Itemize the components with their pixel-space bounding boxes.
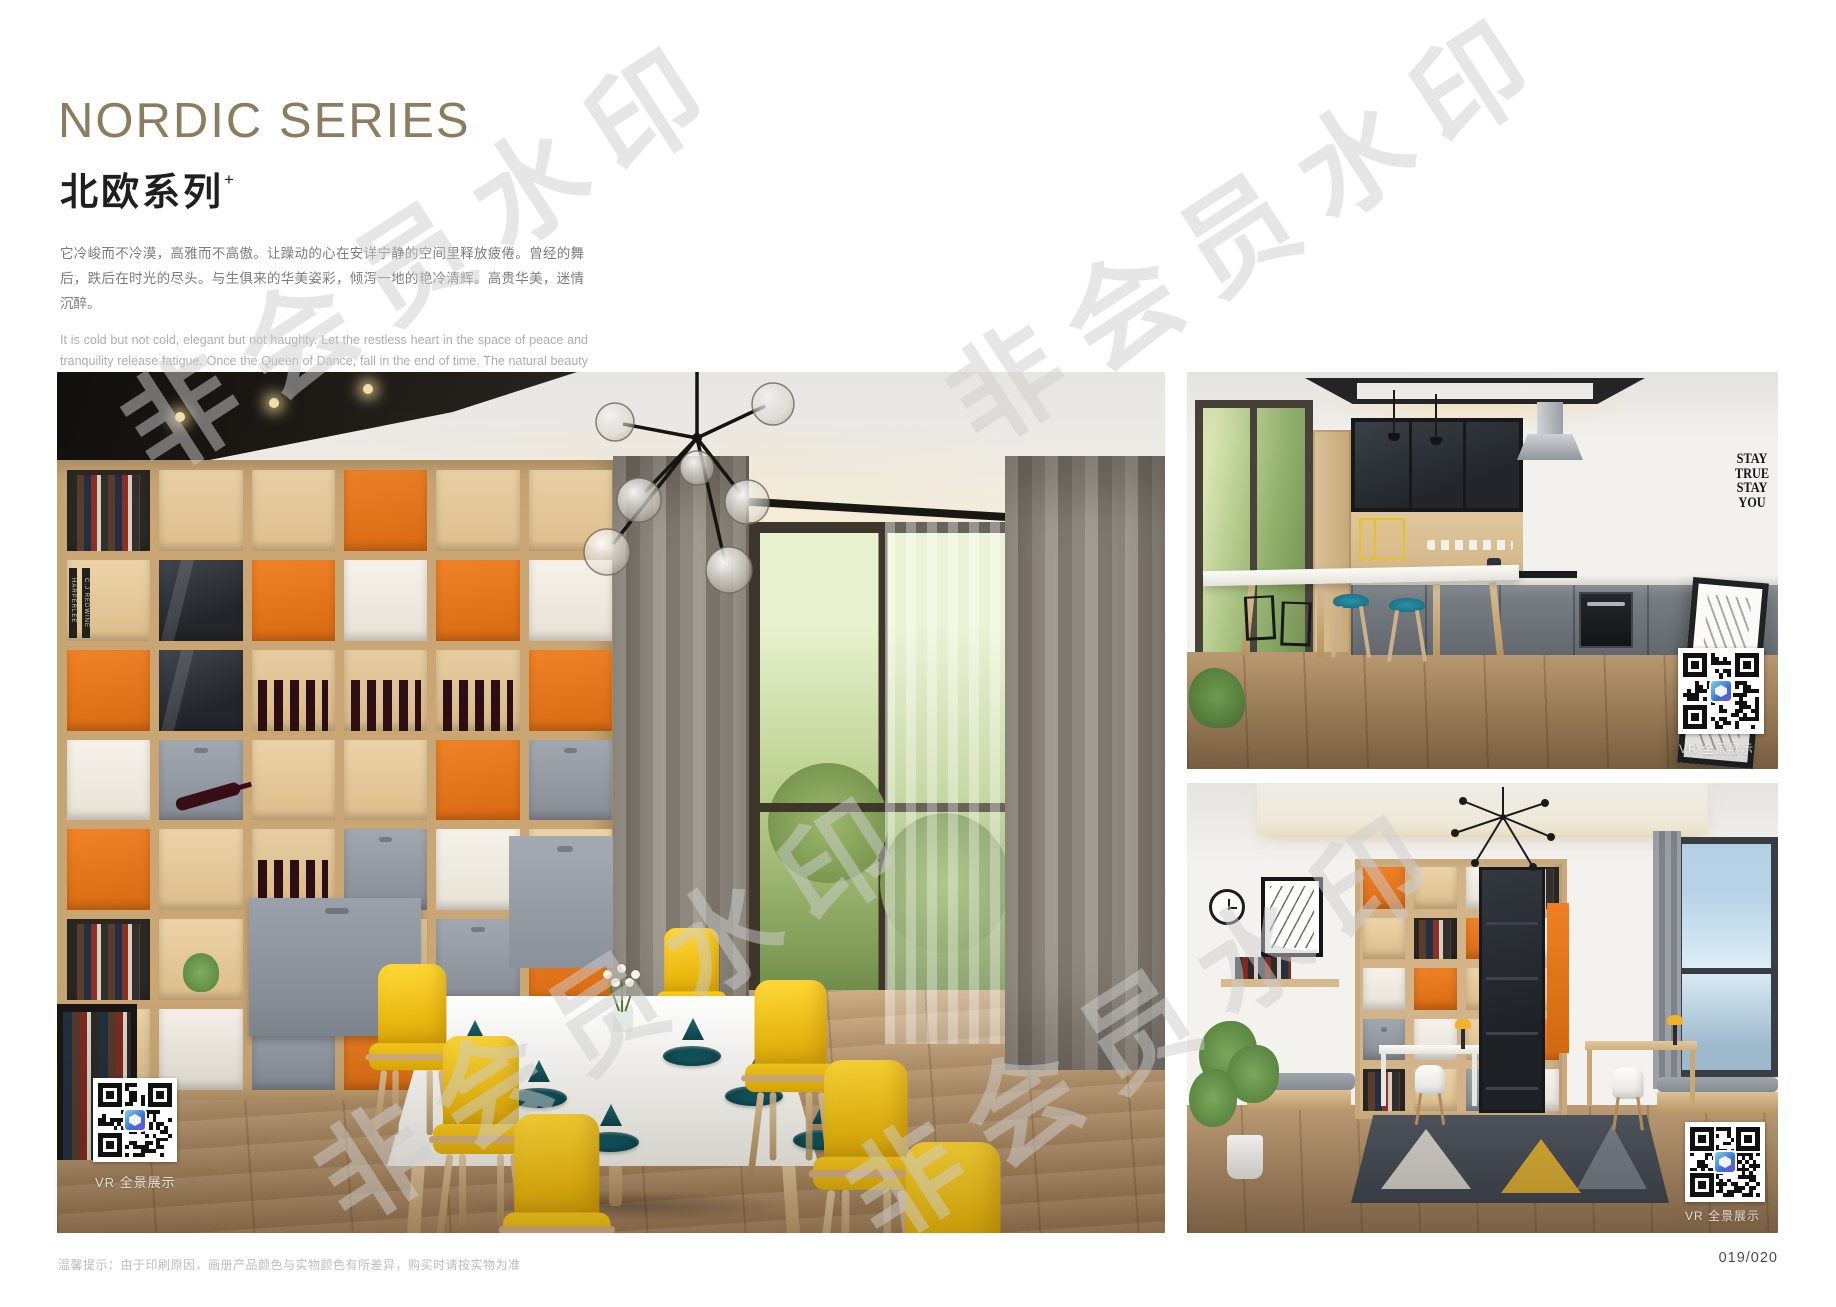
qr-finder	[148, 1083, 172, 1107]
shelf-cell	[344, 740, 427, 821]
dining-chair	[503, 1114, 611, 1233]
pendant-chandelier	[527, 372, 867, 604]
decor	[1587, 1050, 1592, 1106]
sputnik-chandelier	[1433, 787, 1573, 879]
decor	[1381, 1054, 1386, 1106]
subtitle-text: 北欧系列	[60, 172, 224, 214]
metal-chair	[1244, 595, 1276, 641]
decor	[1585, 1041, 1697, 1050]
plant-pot	[1227, 1135, 1263, 1179]
book-spine: HARPERLEE	[69, 568, 77, 638]
decor	[617, 964, 626, 973]
shelf-cell	[159, 650, 242, 731]
decor	[596, 403, 634, 441]
shelf-cell	[159, 470, 242, 551]
qr-module	[1756, 1193, 1760, 1197]
catalog-page: NORDIC SERIES 北欧系列+ 它冷峻而不冷漠，高雅而不高傲。让躁动的心…	[0, 0, 1836, 1307]
decor	[459, 1154, 466, 1226]
shelf-cell	[344, 560, 427, 641]
curtain-right	[1005, 456, 1165, 1070]
qr-code	[1685, 1122, 1765, 1202]
decor	[806, 1092, 813, 1160]
decor	[621, 982, 623, 1012]
decor	[883, 1190, 891, 1233]
pendant-lamp	[1393, 390, 1395, 434]
decor	[1541, 799, 1549, 807]
decor	[371, 1070, 387, 1149]
qr-code	[1678, 648, 1764, 734]
page-title: NORDIC SERIES	[58, 96, 598, 147]
island-leg	[1433, 584, 1440, 658]
page-subtitle: 北欧系列+	[60, 161, 598, 216]
upper-cabinets	[1351, 418, 1523, 512]
decor	[842, 1190, 850, 1233]
shelf-cell	[67, 650, 150, 731]
decor	[584, 383, 794, 593]
decor	[1529, 863, 1537, 871]
ceiling-spotlight	[269, 398, 279, 408]
shelf-cell	[252, 740, 335, 821]
decor	[752, 383, 794, 425]
shelf-cell	[1363, 918, 1405, 960]
garden-view	[768, 763, 888, 883]
shelf-cell	[1363, 867, 1405, 909]
decor	[1612, 1067, 1644, 1099]
decor	[603, 970, 612, 979]
dining-room-photo: HARPERLEE C.J REDWINE	[57, 372, 1165, 1233]
decor	[1537, 402, 1563, 436]
ceiling-spotlight	[175, 412, 185, 422]
decor	[611, 978, 620, 987]
desk-chair	[1610, 1067, 1646, 1132]
ceiling-spotlight	[363, 384, 373, 394]
qr-finder	[1683, 653, 1707, 677]
study-scene: VR 全景展示	[1187, 783, 1778, 1233]
decor	[663, 1046, 721, 1066]
decor	[770, 1092, 777, 1160]
decor	[1472, 1054, 1477, 1106]
decor	[1463, 801, 1503, 817]
range-hood	[1517, 402, 1583, 478]
decor	[1451, 829, 1459, 837]
shelf-cell	[1363, 968, 1405, 1010]
shelf-cell	[436, 470, 519, 551]
book-spines: HARPERLEE C.J REDWINE	[69, 568, 90, 638]
open-shelf-dishes	[1427, 540, 1513, 550]
shelf-cell	[529, 740, 612, 821]
qr-code	[93, 1078, 177, 1162]
decor	[392, 1070, 398, 1135]
decor	[1415, 1065, 1445, 1095]
potted-plant	[1189, 1069, 1237, 1127]
pendant-lamp	[1435, 394, 1437, 438]
book-spine: C.J REDWINE	[82, 568, 90, 638]
shelf-cell	[529, 650, 612, 731]
bar-stool	[1333, 594, 1369, 658]
qr-finder	[1690, 1127, 1714, 1151]
orange-accent-shelf	[1547, 903, 1569, 1053]
page-header: NORDIC SERIES 北欧系列+ 它冷峻而不冷漠，高雅而不高傲。让躁动的心…	[58, 96, 598, 391]
decor	[692, 433, 702, 443]
decor	[706, 547, 752, 593]
decor	[427, 1070, 433, 1135]
decor	[1547, 833, 1555, 841]
decor	[1636, 1097, 1644, 1131]
decor	[436, 1154, 454, 1233]
shelf-cell	[67, 740, 150, 821]
decor	[1500, 814, 1506, 820]
desk-lamp	[1461, 1027, 1465, 1049]
decor	[1690, 1050, 1695, 1106]
wall-shelf	[1221, 979, 1339, 987]
shelf-cell	[252, 650, 335, 731]
decor	[625, 978, 634, 987]
dining-scene: HARPERLEE C.J REDWINE	[57, 372, 1165, 1233]
decor	[1503, 803, 1545, 817]
ceiling-recess	[1305, 378, 1645, 404]
vr-label: VR 全景展示	[1685, 1207, 1760, 1224]
decor	[584, 529, 630, 575]
qr-logo-icon	[1709, 679, 1733, 703]
desk-lamp	[1673, 1023, 1677, 1045]
decor	[1503, 817, 1533, 867]
decor	[1501, 1139, 1581, 1193]
qr-logo-icon	[123, 1108, 147, 1132]
shelf-cell	[67, 919, 150, 1000]
shelf-cell	[1414, 918, 1456, 960]
qr-finder	[1735, 653, 1759, 677]
decor	[1381, 1129, 1471, 1189]
wall-decal: STAY TRUE STAY YOU	[1730, 452, 1774, 511]
decor	[613, 1006, 633, 1032]
qr-finder	[98, 1083, 122, 1107]
decor	[617, 478, 661, 522]
shelf-cell	[344, 470, 427, 551]
decor	[1503, 817, 1551, 837]
decor	[664, 928, 719, 997]
vr-label: VR 全景展示	[95, 1172, 176, 1191]
decor	[499, 1226, 615, 1233]
subtitle-plus: +	[224, 170, 234, 189]
metal-chair	[1280, 601, 1312, 646]
decor	[1517, 434, 1583, 460]
bar-stool	[1389, 598, 1425, 662]
place-setting	[663, 1030, 723, 1066]
shelf-cell	[252, 560, 335, 641]
display-cabinet	[1479, 867, 1545, 1113]
flower-vase	[593, 968, 653, 1032]
page-number: 019/020	[1719, 1250, 1778, 1266]
decor	[1459, 797, 1467, 805]
wall-clock	[1209, 889, 1245, 925]
shelf-cell	[1414, 968, 1456, 1010]
footer-note: 温馨提示：由于印刷原因，画册产品颜色与实物颜色有所差异，购买时请按实物为准	[58, 1256, 521, 1273]
shelf-cell	[436, 560, 519, 641]
decor	[1471, 859, 1479, 867]
art-frame	[1261, 877, 1323, 957]
shelf-cell	[436, 650, 519, 731]
qr-logo-icon	[1713, 1150, 1737, 1174]
decor	[1455, 787, 1551, 867]
shelf-cell	[436, 829, 519, 910]
shelf-cell	[67, 829, 150, 910]
dining-chair	[893, 1142, 1013, 1233]
study-photo: VR 全景展示	[1187, 783, 1778, 1233]
decor	[514, 1114, 599, 1222]
decor	[725, 480, 769, 524]
vr-label: VR 全景展示	[1679, 740, 1754, 757]
decor	[906, 1142, 1001, 1233]
decor	[1387, 610, 1399, 662]
qr-finder	[1690, 1173, 1714, 1197]
decor	[1438, 1093, 1445, 1125]
shelf-cell	[159, 740, 242, 821]
kitchen-photo: STAY TRUE STAY YOU VR 全景展示	[1187, 372, 1778, 769]
cooktop	[1517, 571, 1577, 578]
decor	[755, 980, 827, 1071]
qr-module	[1755, 725, 1759, 729]
qr-module	[168, 1153, 172, 1157]
island-leg	[1317, 584, 1324, 658]
kitchen-scene: STAY TRUE STAY YOU VR 全景展示	[1187, 372, 1778, 769]
decor	[1331, 606, 1343, 658]
shelf-cell	[67, 470, 150, 551]
shelf-cell	[252, 470, 335, 551]
description-zh: 它冷峻而不冷漠，高雅而不高傲。让躁动的心在安详宁静的空间里释放疲倦。曾经的舞后，…	[60, 242, 584, 317]
decor	[1612, 1097, 1620, 1131]
desk-chair	[1413, 1065, 1447, 1127]
shelf-cell	[344, 650, 427, 731]
decor	[1415, 1093, 1422, 1125]
shelf-cell	[436, 740, 519, 821]
shelf-cell	[159, 919, 242, 1000]
shelf-cell	[159, 829, 242, 910]
shelf-door-panel	[509, 836, 619, 968]
qr-finder	[1736, 1127, 1760, 1151]
decor	[816, 1190, 835, 1233]
decor	[680, 451, 714, 485]
qr-finder	[98, 1133, 122, 1157]
shelf-cell	[159, 560, 242, 641]
decor	[1577, 1125, 1647, 1189]
oven	[1579, 592, 1633, 648]
wire-rack	[1359, 518, 1405, 560]
decor	[631, 970, 640, 979]
qr-finder	[1683, 705, 1707, 729]
decor	[748, 1092, 765, 1176]
